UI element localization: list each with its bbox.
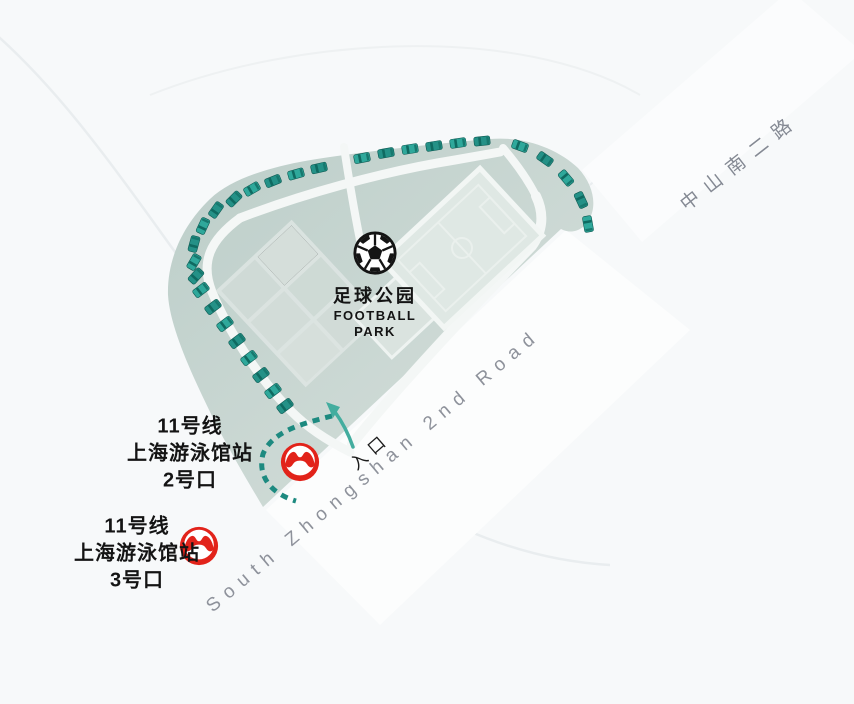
parked-car [582,215,594,232]
metro-station: 上海游泳馆站 [74,541,200,568]
metro-station: 上海游泳馆站 [127,441,253,468]
football-icon [352,230,398,276]
metro-exit: 3号口 [74,568,200,595]
park-map-graphic [0,0,854,704]
parked-car [449,137,466,148]
metro-exit-2-label: 11号线 上海游泳馆站 2号口 [127,414,253,495]
park-title-en-line2: PARK [354,324,396,340]
shanghai-metro-logo [279,441,321,483]
parked-car [474,136,491,147]
park-title-zh: 足球公园 [333,282,417,308]
football-park-map: 足球公园 FOOTBALL PARK 11号线 上海游泳馆站 2号口 11号线 … [0,0,854,704]
park-title-en-line1: FOOTBALL [334,308,417,324]
metro-line: 11号线 [74,514,200,541]
metro-exit: 2号口 [127,468,253,495]
park-label: 足球公园 FOOTBALL PARK [333,230,417,340]
metro-line: 11号线 [127,414,253,441]
zhongshan-south-road-surface [582,0,854,242]
metro-exit-3-label: 11号线 上海游泳馆站 3号口 [74,514,200,595]
